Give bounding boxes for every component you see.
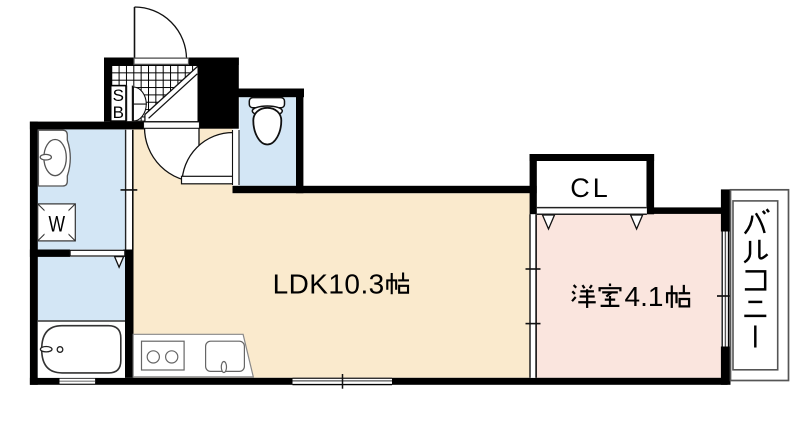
svg-text:CL: CL [570, 173, 611, 203]
svg-text:W: W [49, 212, 66, 237]
svg-text:LDK10.3: LDK10.3 [273, 269, 385, 300]
svg-text:S: S [113, 86, 124, 105]
svg-text:4.1: 4.1 [625, 281, 664, 312]
svg-text:B: B [113, 103, 124, 122]
